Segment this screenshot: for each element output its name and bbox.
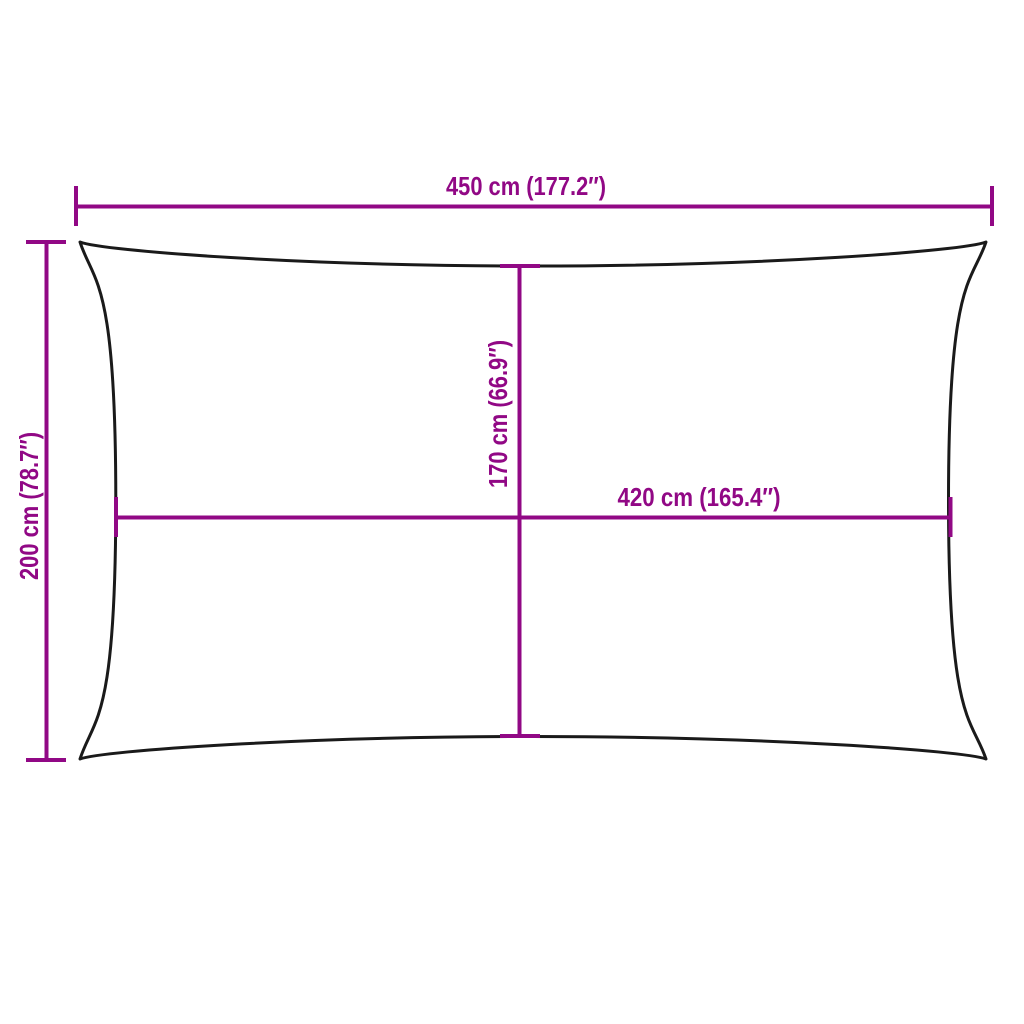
svg-text:450 cm (177.2″): 450 cm (177.2″) <box>446 171 606 201</box>
svg-text:420 cm (165.4″): 420 cm (165.4″) <box>618 482 781 512</box>
svg-text:200 cm (78.7″): 200 cm (78.7″) <box>14 432 44 580</box>
svg-text:170 cm (66.9″): 170 cm (66.9″) <box>483 340 513 488</box>
